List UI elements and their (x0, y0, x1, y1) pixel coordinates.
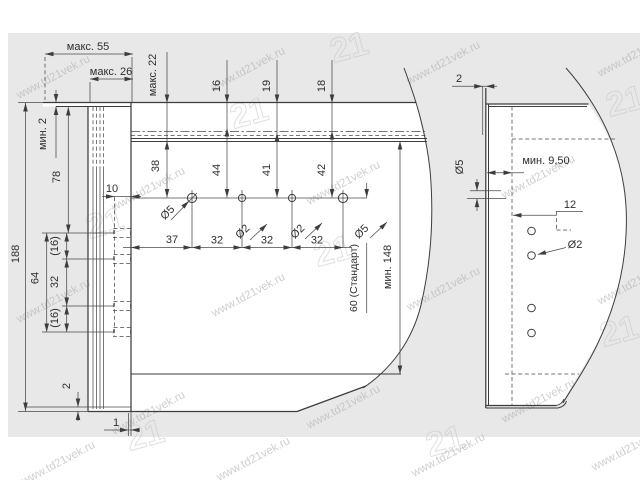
dim-16a: (16) (49, 236, 61, 256)
dim-188: 188 (10, 245, 22, 263)
dim-60-standart: 60 (Стандарт) (348, 244, 360, 312)
dim-min950: мин. 9,50 (522, 155, 569, 167)
dim-38: 38 (150, 160, 162, 172)
dim-32b: 32 (261, 235, 273, 247)
dim-10: 10 (106, 183, 118, 195)
dim-max26: макс. 26 (90, 66, 132, 78)
dim-12: 12 (564, 199, 576, 211)
dim-64: 64 (30, 272, 42, 284)
dim-32: 32 (49, 276, 61, 288)
dim-bottom1: 1 (113, 417, 119, 429)
dim-32a: 32 (211, 235, 223, 247)
dim-max55: макс. 55 (67, 41, 109, 53)
dim-78: 78 (51, 171, 63, 183)
dim-16b: (16) (49, 308, 61, 328)
dim-max22: макс. 22 (147, 54, 159, 96)
dim-right-dia2: Ø2 (568, 239, 583, 251)
dim-18: 18 (316, 80, 328, 92)
dim-16: 16 (211, 80, 223, 92)
technical-drawing-page: www.td21vek.ru www.td21vek.ru www.td21ve… (0, 0, 640, 480)
dim-32c: 32 (311, 235, 323, 247)
dim-37: 37 (166, 234, 178, 246)
dim-bottom2: 2 (61, 383, 73, 389)
dim-19: 19 (261, 80, 273, 92)
dim-44: 44 (211, 164, 223, 176)
dim-41: 41 (261, 164, 273, 176)
left-view-panel-body (43, 103, 432, 412)
dim-min148: мин. 148 (382, 245, 394, 289)
dim-42: 42 (316, 164, 328, 176)
dim-min2: мин. 2 (37, 118, 49, 150)
dim-right-dia5: Ø5 (454, 160, 466, 175)
furniture-fitting-drawing: www.td21vek.ru www.td21vek.ru www.td21ve… (0, 0, 640, 480)
dim-right2: 2 (456, 73, 462, 85)
